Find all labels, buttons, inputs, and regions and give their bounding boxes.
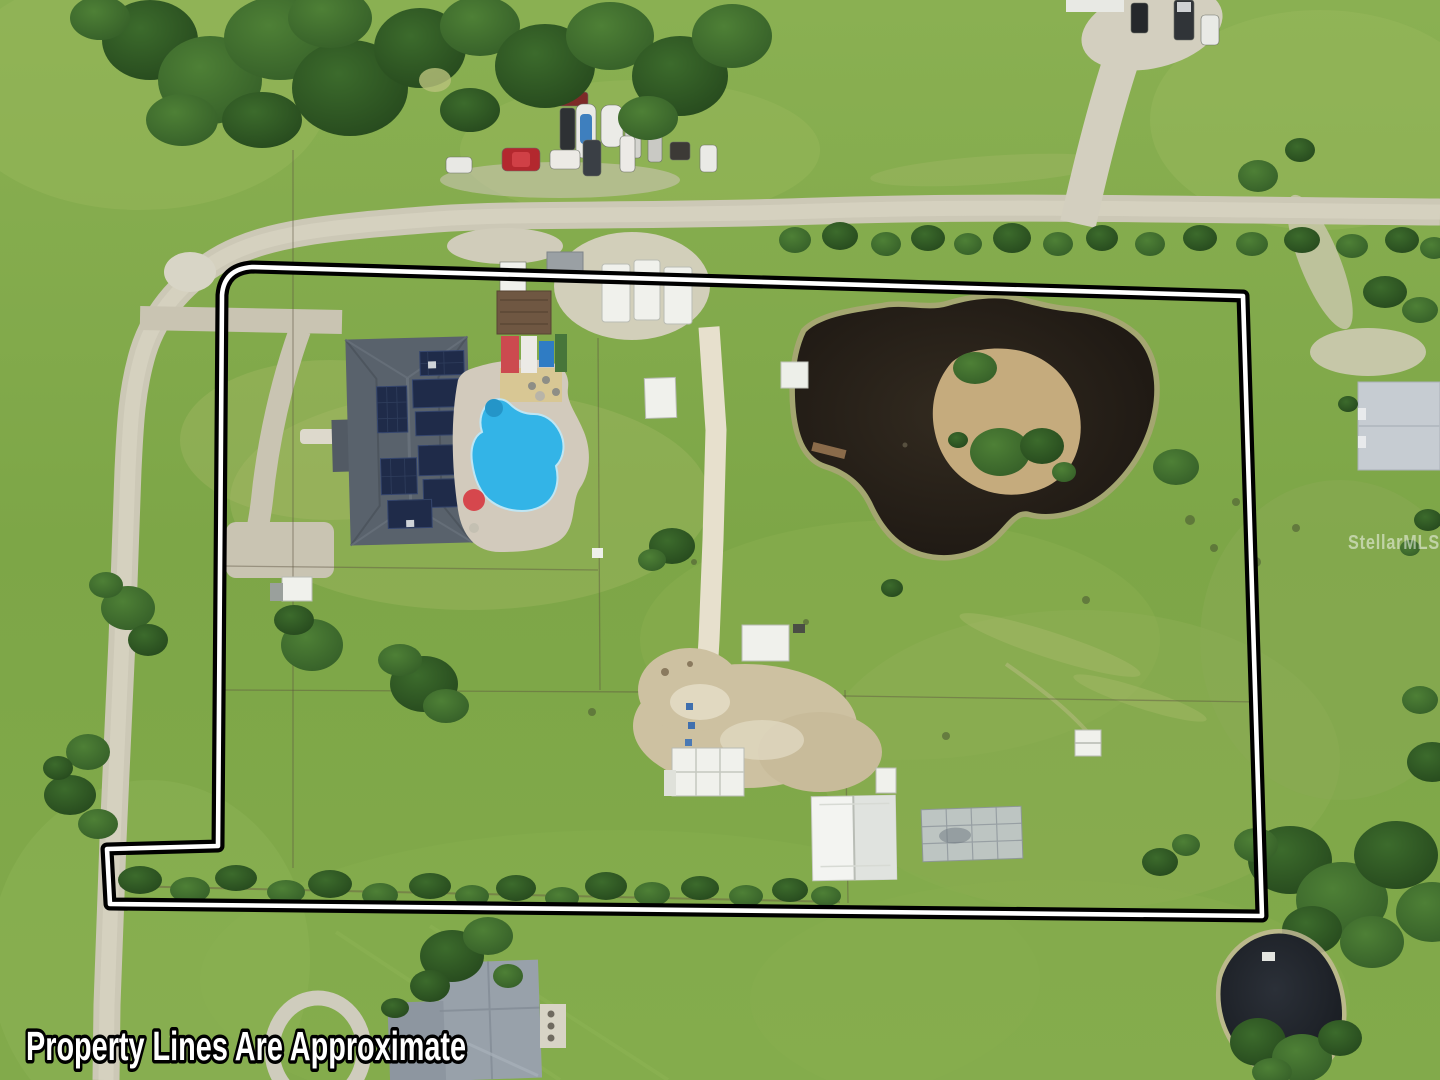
red-car-roof [512,152,530,167]
white-canopy [521,336,537,373]
pond-dock [781,362,808,388]
white-car-2 [700,145,717,172]
field-shed-2 [742,625,789,661]
atv [793,624,805,633]
white-car-3 [1201,15,1219,45]
island-tree-1 [953,352,997,384]
truck-cab [1177,2,1191,12]
west-shed [282,577,312,601]
blue-barrel-2 [688,722,695,729]
dark-trailer [560,108,575,150]
white-car-1 [446,157,472,173]
dark-car [583,140,601,176]
spa [485,399,503,417]
lone-tree-east [1153,449,1199,485]
barn [811,795,896,880]
aerial-photo: StellarMLS Property Lines Are Approximat… [0,0,1440,1080]
island-tree-2 [970,428,1030,476]
stable-shed-wing [664,770,676,796]
roof-vent-2 [406,520,414,527]
disclaimer-text: Property Lines Are Approximate [26,1023,466,1069]
rock-mound [164,252,216,292]
greenhouse [921,806,1023,861]
roof-vent-1 [428,361,436,368]
east-house-bush [1338,396,1358,412]
field-shed-1 [644,377,676,418]
pond-float [1262,952,1275,961]
main-house-solar-roof [329,336,472,546]
rv-2 [634,260,660,320]
island-bush [948,432,968,448]
red-umbrella [463,489,485,511]
island-tree-3 [1020,428,1064,464]
white-van [550,150,580,169]
west-shed-shadow [270,583,283,601]
blue-barrel-1 [686,703,693,710]
blue-tarp [539,341,554,367]
island-tree-4 [1052,462,1076,482]
small-shed [876,768,896,793]
blue-barrel-3 [685,739,692,746]
boat-1-cockpit [580,114,592,144]
white-building-edge [1066,0,1124,12]
tiny-white-box [592,548,603,558]
white-sand-path [706,327,716,690]
green-canopy [555,334,567,372]
red-canopy [501,336,519,373]
white-truck [620,136,635,172]
dark-van [1131,3,1148,33]
dark-flatbed [670,142,690,160]
mls-watermark: StellarMLS [1348,532,1440,554]
